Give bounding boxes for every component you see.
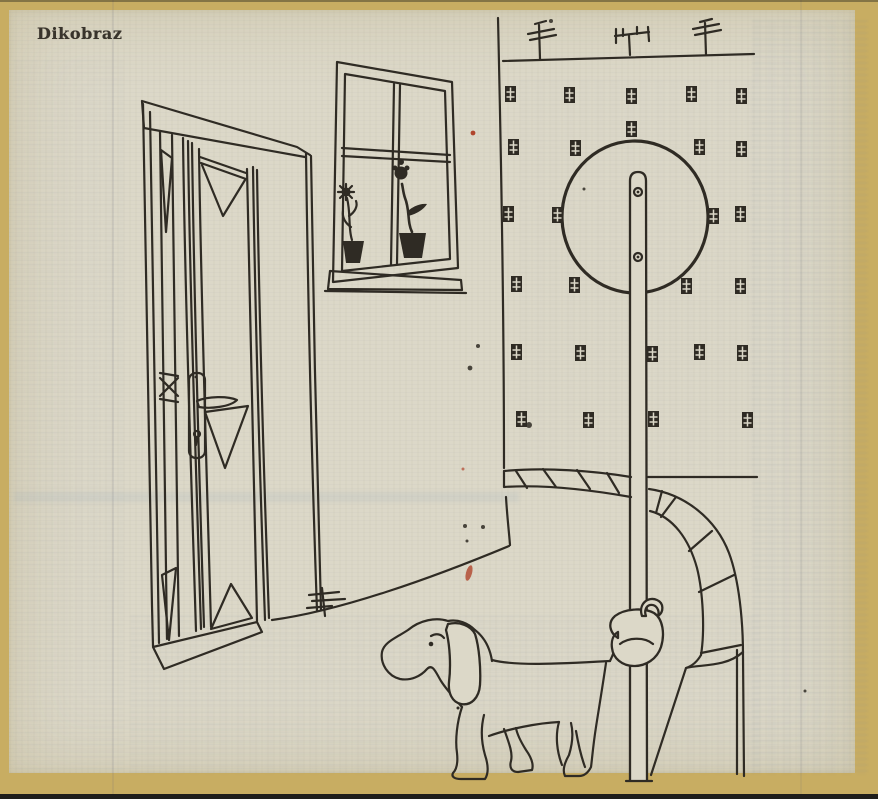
dog-ear [446,623,480,704]
building-window [735,206,746,222]
door-main-panel [199,149,257,629]
dog-eye [429,642,434,647]
building-window [508,139,519,155]
building-window [694,344,705,360]
building-windows [503,86,753,428]
tv-antenna-icon [615,27,649,55]
building-window [648,411,659,427]
building-window [694,139,705,155]
building-window [552,207,563,223]
building-window [503,206,514,222]
building-window [569,277,580,293]
dog-hind-leg [564,663,606,776]
building-window [647,346,658,362]
window [325,62,466,293]
building-window [737,345,748,361]
sign-pole [630,172,647,781]
photo-edge-bottom [0,794,878,799]
building-window [736,88,747,104]
masthead-title: Dikobraz [37,24,123,42]
door-frame-corner [306,153,321,611]
tv-antenna-icon [528,21,556,59]
dog [382,599,663,779]
building-window [575,345,586,361]
building-window [570,140,581,156]
dog-front-leg [452,707,487,779]
building-window [516,411,527,427]
photo-edge-top [0,0,878,2]
building-window [626,121,637,137]
cartoon-illustration [0,0,878,799]
building-window [626,88,637,104]
building-window [583,412,594,428]
building-window [736,141,747,157]
building-window [686,86,697,102]
dog-back [492,660,610,664]
building-window [511,276,522,292]
building-window [681,278,692,294]
building-window [742,412,753,428]
apartment-building [498,18,754,781]
building-window [735,278,746,294]
window-transom [342,148,450,162]
building-window [505,86,516,102]
door-lintel [142,101,310,157]
door [142,101,321,669]
building-window [564,87,575,103]
red-specks [462,131,476,582]
door-left-panel [160,131,179,640]
building-window [708,208,719,224]
tv-antenna-icon [693,19,721,55]
dog-belly [489,722,559,736]
building-window [511,344,522,360]
